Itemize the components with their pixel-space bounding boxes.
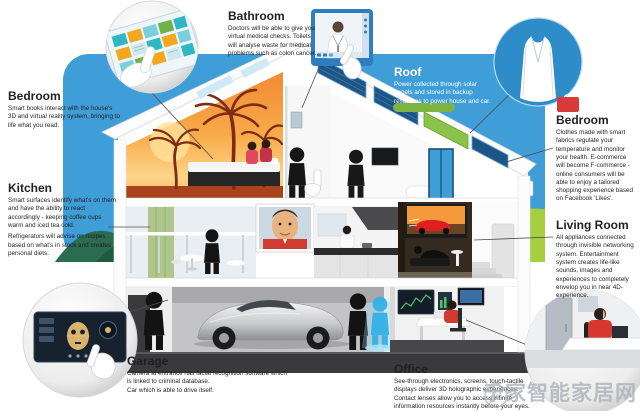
wall-tv [372, 148, 398, 165]
shopping-bag-icon [557, 95, 579, 113]
living-room-room [398, 202, 472, 280]
roof-body: Power collected through solar panels and… [394, 81, 494, 106]
middle-floor [116, 198, 530, 287]
bed [188, 158, 280, 186]
office-room [390, 287, 504, 352]
kitchen-title: Kitchen [8, 182, 116, 195]
garage-body-1: Camera at entrance has facial recognitio… [127, 370, 287, 387]
counter [314, 248, 398, 255]
bathroom-room [285, 86, 331, 200]
office-worker [444, 310, 460, 323]
living-room-body: All appliances connected through invisib… [556, 234, 638, 300]
garage-title: Garage [127, 355, 287, 368]
label-bedroom-right: Bedroom Clothes made with smart fabrics … [556, 114, 636, 207]
terrace [126, 207, 256, 278]
video-call-screen [256, 204, 314, 252]
label-living-room: Living Room All appliances connected thr… [556, 219, 638, 303]
label-garage: Garage Camera at entrance has facial rec… [127, 355, 287, 398]
bedroom-right-body: Clothes made with smart fabrics regulate… [556, 129, 636, 204]
bedroom-left-title: Bedroom [8, 90, 120, 103]
bathroom-body: Doctors will be able to give you virtual… [228, 25, 318, 58]
garage-body-2: Car which is able to drive itself. [127, 387, 287, 395]
office-title: Office [394, 363, 532, 376]
kitchen-room [314, 207, 398, 278]
living-room-title: Living Room [556, 219, 638, 232]
kitchen-body-1: Smart surfaces identify what's on them a… [8, 197, 116, 230]
label-bedroom-left: Bedroom Smart books interact with the ho… [8, 90, 120, 133]
label-kitchen: Kitchen Smart surfaces identify what's o… [8, 182, 116, 261]
bedroom-left-body: Smart books interact with the house's 3D… [8, 105, 120, 130]
site-watermark: 千家智能家居网 [483, 383, 637, 404]
garage-room [144, 287, 398, 352]
label-roof: Roof Power collected through solar panel… [394, 66, 494, 109]
bottom-floor [118, 287, 528, 352]
roof-title: Roof [394, 66, 494, 79]
kitchen-body-2: Refrigerators will advise on recipes bas… [8, 233, 116, 258]
facial-recognition-scanner-icon [34, 312, 126, 362]
callout-facial-recognition [23, 283, 137, 397]
smart-home-infographic: PLUGNET ROAD [0, 0, 640, 411]
wall-chart-screen [398, 290, 434, 314]
label-bathroom: Bathroom Doctors will be able to give yo… [228, 10, 318, 61]
bathroom-title: Bathroom [228, 10, 318, 23]
feather-logo-icon [483, 383, 509, 409]
bedroom-right-title: Bedroom [556, 114, 636, 127]
